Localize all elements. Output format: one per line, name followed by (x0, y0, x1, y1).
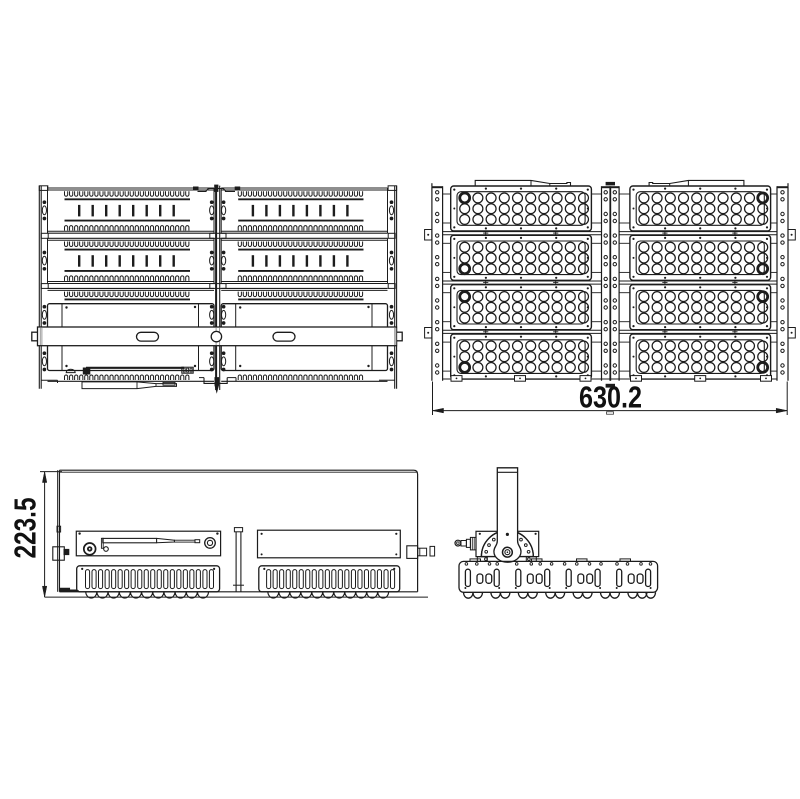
svg-text:630.2: 630.2 (579, 381, 642, 415)
svg-text:223.5: 223.5 (9, 497, 43, 558)
